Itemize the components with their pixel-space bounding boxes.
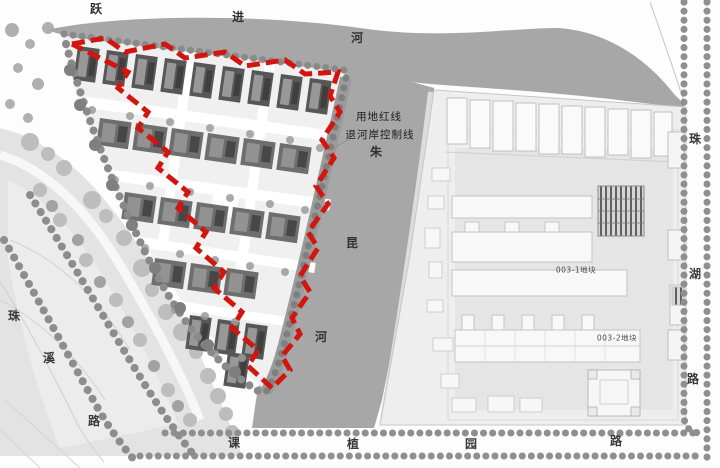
- road-label-kezhiyuan-char-3: 路: [610, 435, 622, 447]
- hatched-building: [598, 186, 644, 236]
- river-label-zhukun-char-0: 朱: [370, 146, 382, 158]
- road-label-zhuxi-char-1: 溪: [43, 352, 55, 364]
- road-label-kezhiyuan-char-0: 课: [228, 437, 240, 449]
- river-label-yuejin-char-1: 进: [232, 11, 244, 23]
- road-label-kezhiyuan-char-1: 植: [347, 438, 359, 450]
- annotation-riverbank-control-line: 退河岸控制线: [346, 130, 415, 141]
- river-label-yuejin-char-0: 跃: [90, 3, 102, 15]
- site-plan-drawing: [0, 0, 720, 468]
- site-plan-canvas: 跃 进 河 用地红线 退河岸控制线 朱 昆 河 珠 溪 路 课 植 园 路 珠 …: [0, 0, 720, 468]
- river-label-yuejin-char-2: 河: [351, 32, 363, 44]
- annotation-site-red-line: 用地红线: [356, 112, 402, 123]
- road-label-zhuxi-char-2: 路: [88, 415, 100, 427]
- river-label-zhukun-char-1: 昆: [346, 237, 358, 249]
- road-label-zhuhu-char-1: 湖: [689, 268, 701, 280]
- road-label-zhuhu-char-0: 珠: [689, 133, 701, 145]
- parcel-label-003-2: 003-2地块: [597, 334, 637, 342]
- road-label-kezhiyuan-char-2: 园: [465, 438, 477, 450]
- road-label-zhuhu-char-2: 路: [687, 373, 699, 385]
- parcel-label-003-1: 003-1地块: [556, 266, 596, 274]
- river-label-zhukun-char-2: 河: [315, 331, 327, 343]
- courtyard-building: [588, 370, 640, 416]
- road-label-zhuxi-char-0: 珠: [8, 310, 20, 322]
